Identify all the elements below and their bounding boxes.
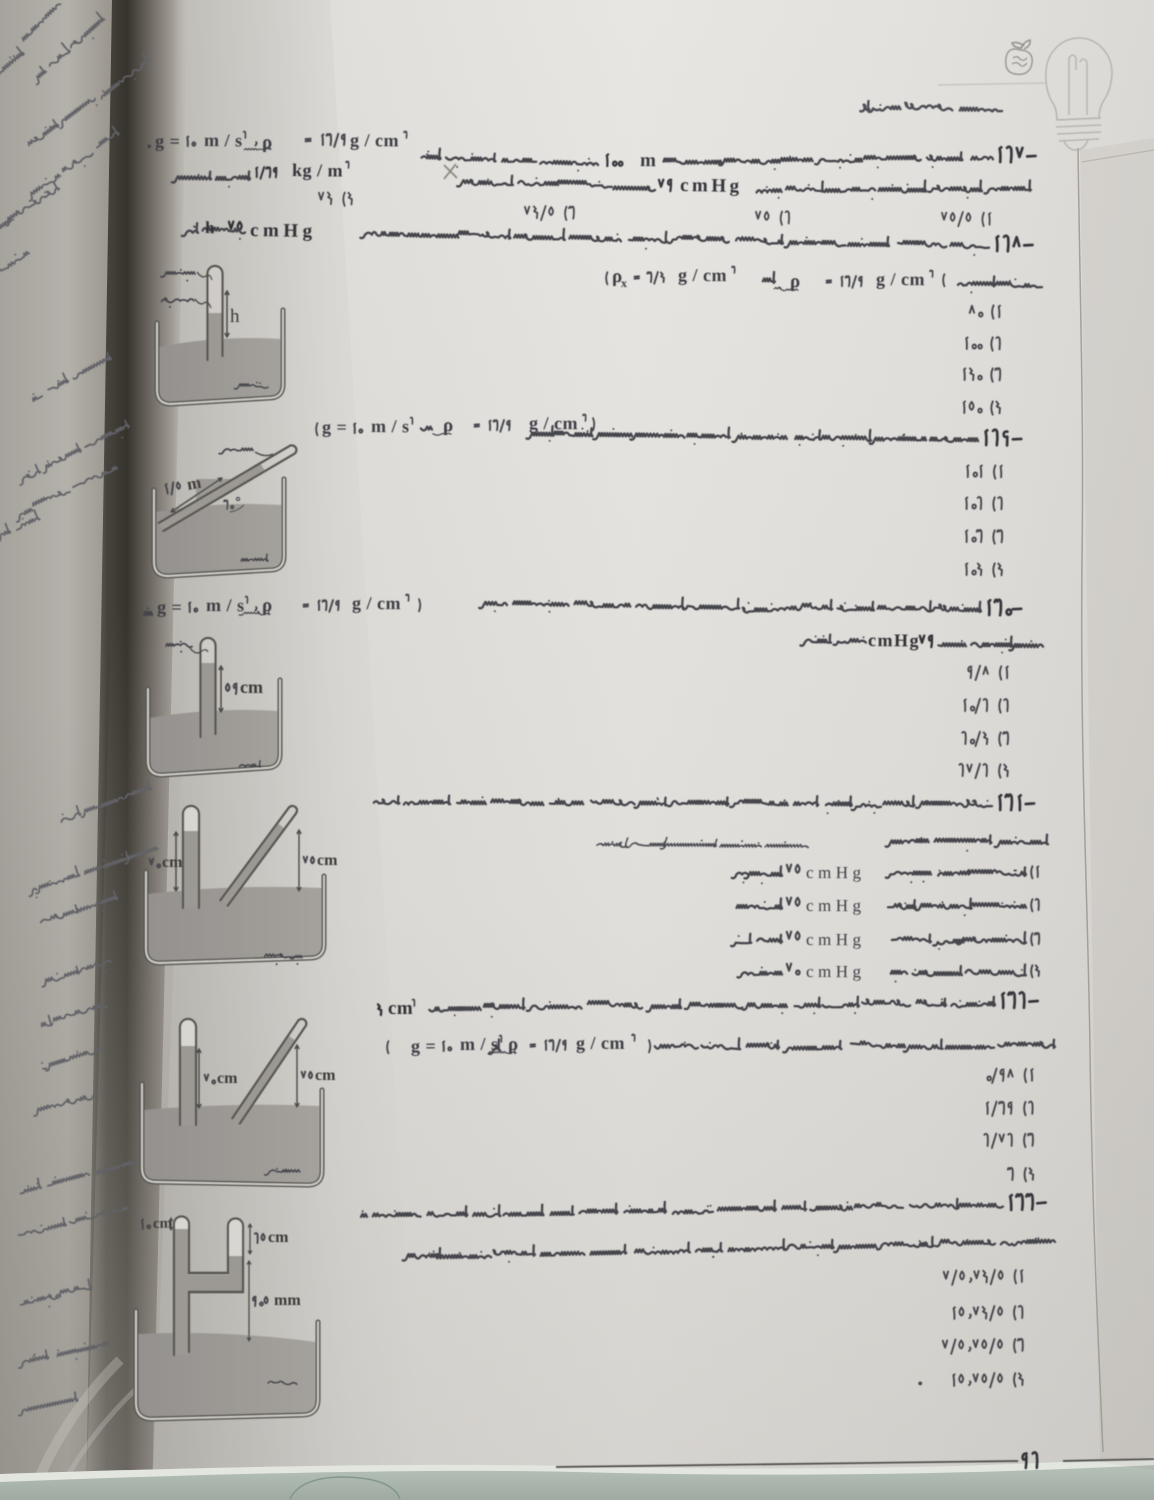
svg-text:g / cm: g / cm xyxy=(352,593,401,613)
svg-text:g / cm: g / cm xyxy=(350,130,399,150)
svg-text:g =: g = xyxy=(155,131,181,151)
svg-text:cm: cm xyxy=(162,854,183,871)
svg-text:cmHg: cmHg xyxy=(806,863,866,882)
svg-text:g / cm: g / cm xyxy=(576,1033,625,1053)
svg-text:x: x xyxy=(621,276,627,290)
svg-text:g / cm: g / cm xyxy=(876,269,925,289)
svg-text:g =: g = xyxy=(411,1036,436,1056)
svg-text:ρ: ρ xyxy=(262,595,272,616)
svg-text:g / cm: g / cm xyxy=(678,265,727,285)
svg-text:mm: mm xyxy=(274,1292,301,1309)
svg-text:g =: g = xyxy=(157,597,182,617)
svg-text:g =: g = xyxy=(322,417,347,437)
svg-text:cmHg: cmHg xyxy=(250,220,317,242)
svg-text:m / s: m / s xyxy=(371,416,410,436)
svg-text:cmHg: cmHg xyxy=(806,962,866,981)
svg-text:h: h xyxy=(205,218,215,237)
svg-text:cm: cm xyxy=(240,677,263,697)
svg-text:cm: cm xyxy=(388,998,413,1019)
svg-text:cm: cm xyxy=(317,852,338,869)
svg-text:h: h xyxy=(230,306,240,327)
svg-text:cmHg: cmHg xyxy=(806,896,866,915)
svg-text:cmHg: cmHg xyxy=(680,175,743,197)
svg-text:cm: cm xyxy=(268,1229,289,1246)
svg-text:cm: cm xyxy=(153,1216,173,1232)
svg-text:m: m xyxy=(640,150,656,171)
svg-text:cm: cm xyxy=(217,1070,238,1087)
svg-text:ρ: ρ xyxy=(790,271,800,292)
svg-text:m / s: m / s xyxy=(460,1034,499,1054)
svg-text:cm: cm xyxy=(315,1067,336,1084)
svg-text:kg / m: kg / m xyxy=(292,160,343,181)
svg-text:m / s: m / s xyxy=(204,130,243,150)
svg-text:cmHg: cmHg xyxy=(806,930,866,949)
svg-text:g / cm: g / cm xyxy=(529,413,578,433)
svg-text:m / s: m / s xyxy=(206,595,245,615)
svg-text:cmHg: cmHg xyxy=(868,630,920,650)
